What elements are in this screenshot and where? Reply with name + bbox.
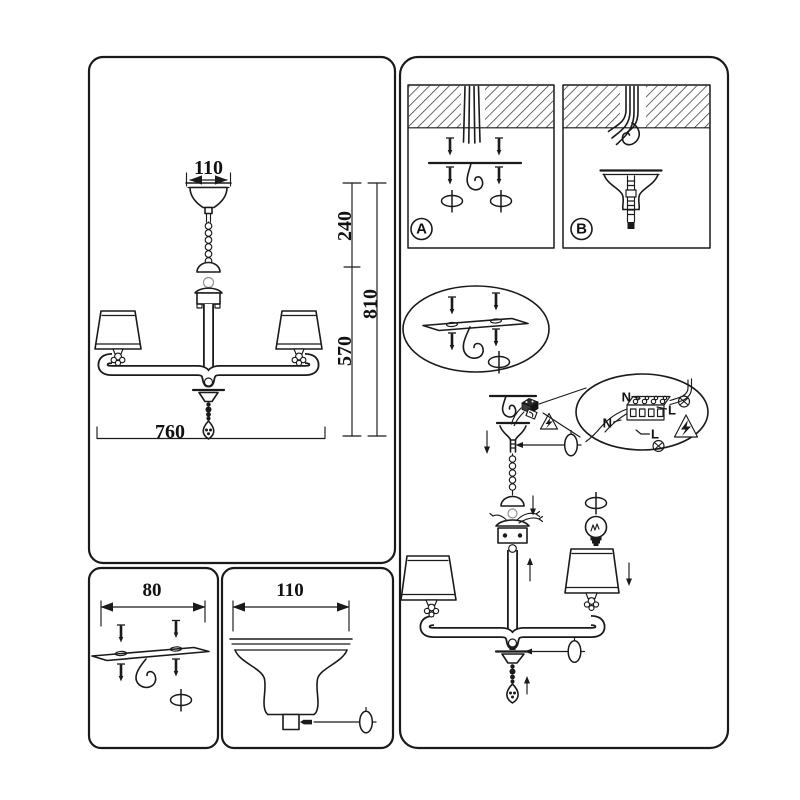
screw-icon (448, 297, 456, 315)
light-bulb-icon (586, 517, 607, 547)
screw-icon (117, 625, 125, 643)
wire-l-label: L (668, 403, 676, 418)
ceiling-hook-icon (136, 659, 156, 687)
chain-cup (197, 263, 220, 273)
bottom-finial (193, 390, 224, 439)
mounting-bracket (92, 647, 209, 661)
screwdriver-icon (171, 689, 192, 712)
arrow-down-icon (626, 563, 632, 586)
crystal-drop (507, 684, 518, 703)
bracket-panel: 80 (89, 568, 218, 748)
loop (204, 278, 214, 288)
canopy-width-dimension: 110 (194, 157, 223, 179)
mounting-bracket (423, 319, 528, 331)
chandelier-canopy (186, 183, 231, 222)
hub-with-wires (490, 512, 543, 553)
screw-icon (448, 333, 456, 351)
bracket-callout (403, 286, 549, 374)
dimension-panel: 110 (89, 57, 395, 563)
screwdriver-icon (442, 190, 463, 213)
step-a: A (408, 85, 554, 248)
canopy-panel: 110 (222, 568, 393, 748)
screw-icon (446, 138, 454, 156)
ceiling-hook-icon (467, 164, 482, 190)
arrow-up-icon (527, 558, 533, 582)
screwdriver-icon (360, 707, 377, 733)
loop (508, 509, 517, 518)
install-panel: A (400, 57, 728, 748)
hanger-height-dimension: 240 (334, 211, 356, 241)
canopy-side-view (230, 639, 352, 730)
screw-icon (495, 167, 503, 185)
screw-icon (446, 167, 454, 185)
ceiling-hook-icon (463, 327, 483, 358)
wire-l-label: L (651, 427, 659, 442)
wire-n-label: N (622, 390, 631, 405)
step-a-label: A (416, 221, 427, 238)
wire-n-label: N (603, 416, 612, 431)
wiring-callout: N L N L (576, 374, 708, 452)
screwdriver-icon (568, 637, 585, 663)
right-shade (565, 549, 619, 611)
canopy-with-stem (601, 171, 662, 230)
screwdriver-icon (489, 351, 510, 374)
chandelier-chain (205, 222, 212, 268)
arrow-down-icon (530, 496, 536, 516)
screw-icon (172, 659, 180, 677)
set-screw (304, 720, 312, 725)
arrow-up-icon (524, 676, 530, 694)
instruction-sheet-page: 110 (0, 0, 800, 800)
bracket-width-dimension: 80 (143, 580, 162, 601)
assembly-view (401, 492, 632, 703)
overall-height-dimension: 810 (360, 289, 382, 319)
screw-icon (492, 293, 500, 311)
screw-icon (495, 138, 503, 156)
screw-icon (117, 664, 125, 682)
instruction-sheet: 110 (0, 0, 800, 800)
screwdriver-icon (491, 190, 512, 213)
arrow-down-icon (484, 431, 490, 454)
screwdriver-icon (586, 492, 607, 515)
screwdriver-icon (565, 430, 582, 456)
chain-cup (501, 497, 524, 507)
canopy-width-dimension: 110 (276, 580, 303, 601)
step-b-label: B (576, 221, 587, 238)
hanging-step (484, 388, 586, 495)
fixture-width-dimension: 760 (155, 421, 185, 443)
fixture-height-dimension: 570 (334, 336, 356, 366)
screw-icon (172, 621, 180, 639)
bottom-finial (496, 647, 530, 704)
canopy-front (497, 423, 529, 452)
crystal-drop (203, 421, 214, 439)
step-b: B (563, 85, 710, 248)
left-shade (401, 556, 456, 617)
canopy-screw-boss (283, 715, 299, 730)
vertical-dimensions: 240 570 810 (334, 183, 386, 436)
screw-icon (492, 329, 500, 347)
ceiling-hook-icon (503, 396, 516, 417)
panel-border (89, 57, 395, 563)
chain (509, 454, 515, 495)
